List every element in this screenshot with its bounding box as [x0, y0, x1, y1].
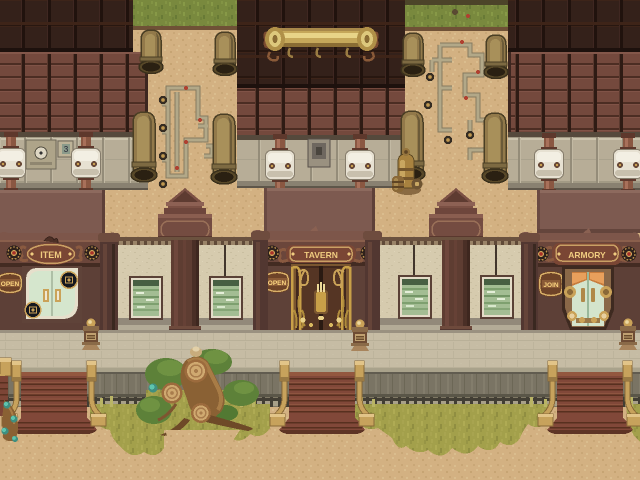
svg-text:JOIN: JOIN [543, 282, 558, 289]
svg-text:3: 3 [64, 145, 69, 154]
svg-text:ARMORY: ARMORY [568, 250, 606, 260]
svg-text:TAVERN: TAVERN [304, 250, 338, 260]
svg-text:ITEM: ITEM [40, 250, 62, 260]
